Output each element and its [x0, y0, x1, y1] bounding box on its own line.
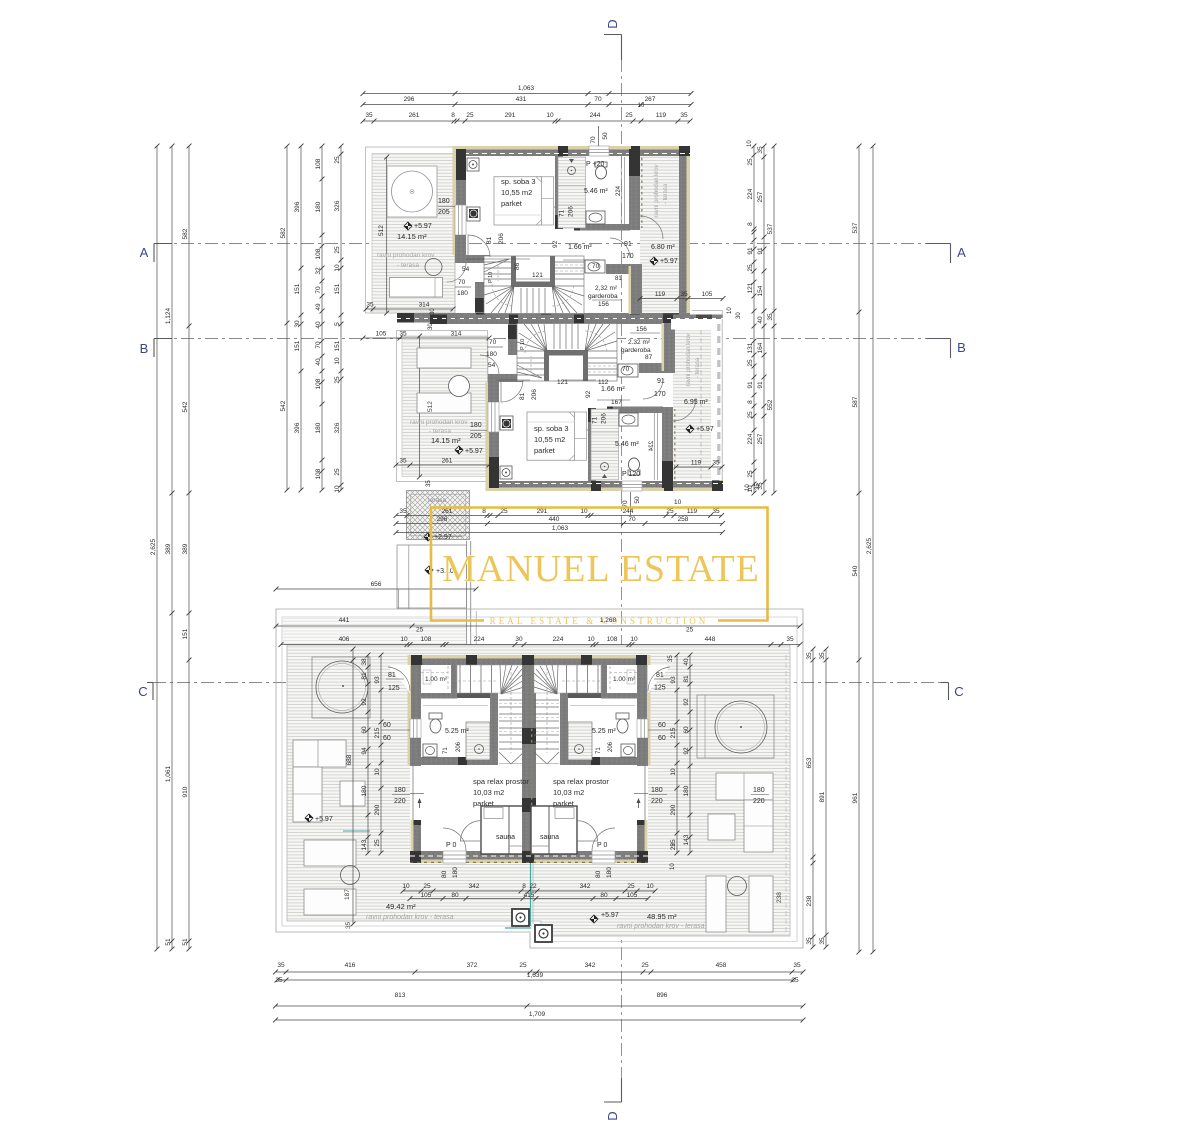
svg-text:35: 35: [806, 652, 813, 660]
svg-text:441: 441: [339, 617, 350, 624]
svg-text:91: 91: [624, 241, 632, 248]
svg-text:180: 180: [753, 787, 765, 794]
svg-text:656: 656: [371, 581, 382, 588]
svg-text:terasa: terasa: [428, 497, 446, 504]
svg-text:35: 35: [757, 146, 764, 154]
svg-text:81: 81: [656, 672, 664, 679]
svg-text:224: 224: [747, 433, 754, 444]
svg-text:60: 60: [383, 735, 391, 742]
svg-text:5.25 m²: 5.25 m²: [592, 728, 616, 735]
svg-text:80: 80: [451, 892, 459, 899]
svg-text:8: 8: [747, 222, 754, 226]
svg-text:542: 542: [280, 400, 287, 411]
svg-text:105: 105: [376, 331, 387, 338]
svg-text:81: 81: [519, 392, 526, 400]
svg-text:81: 81: [683, 675, 690, 683]
svg-text:8: 8: [747, 400, 754, 404]
svg-text:25: 25: [416, 627, 424, 634]
svg-text:sp. soba 3: sp. soba 3: [501, 177, 536, 186]
svg-text:92: 92: [552, 240, 559, 248]
svg-text:587: 587: [852, 396, 859, 407]
svg-text:582: 582: [280, 227, 287, 238]
svg-text:257: 257: [757, 191, 764, 202]
svg-text:206: 206: [608, 741, 614, 752]
svg-text:70: 70: [315, 286, 322, 294]
svg-text:10: 10: [670, 863, 676, 870]
svg-text:+5.97: +5.97: [601, 912, 619, 919]
svg-text:70: 70: [458, 279, 466, 286]
svg-text:70: 70: [628, 516, 636, 523]
svg-text:35: 35: [277, 962, 285, 969]
svg-text:91: 91: [747, 247, 754, 255]
svg-text:108: 108: [315, 158, 322, 169]
svg-text:2,32 m²: 2,32 m²: [595, 285, 618, 292]
svg-text:206: 206: [601, 413, 608, 424]
svg-text:121: 121: [747, 282, 754, 293]
svg-text:54: 54: [488, 362, 496, 369]
svg-text:P 10: P 10: [520, 339, 526, 350]
svg-text:205: 205: [438, 209, 450, 216]
svg-text:35: 35: [819, 652, 826, 660]
svg-text:108: 108: [421, 636, 432, 643]
svg-text:48.95 m²: 48.95 m²: [647, 912, 677, 921]
svg-text:224: 224: [553, 636, 564, 643]
svg-text:70: 70: [622, 366, 630, 373]
svg-text:35: 35: [791, 977, 799, 984]
svg-text:1,061: 1,061: [165, 765, 172, 782]
svg-text:ravni prohodan krov: ravni prohodan krov: [377, 252, 435, 259]
svg-text:35: 35: [365, 112, 373, 119]
svg-text:- terasa: - terasa: [397, 262, 419, 269]
svg-text:25: 25: [641, 962, 649, 969]
svg-text:38: 38: [361, 658, 368, 666]
svg-text:30: 30: [736, 312, 742, 319]
svg-text:258: 258: [678, 516, 689, 523]
svg-text:30: 30: [294, 320, 301, 328]
svg-text:22: 22: [529, 883, 537, 890]
svg-text:389: 389: [182, 543, 189, 554]
svg-text:92: 92: [683, 747, 690, 755]
svg-text:91: 91: [757, 381, 764, 389]
svg-text:+5.97: +5.97: [465, 448, 483, 455]
svg-text:891: 891: [819, 791, 826, 802]
svg-text:P 120: P 120: [622, 471, 640, 478]
svg-text:35: 35: [819, 937, 826, 945]
svg-text:180: 180: [438, 198, 450, 205]
svg-text:206: 206: [568, 206, 575, 217]
svg-text:406: 406: [339, 636, 350, 643]
svg-text:92: 92: [683, 698, 690, 706]
svg-text:25: 25: [334, 246, 341, 254]
svg-text:5.46 m²: 5.46 m²: [615, 441, 639, 448]
svg-text:ravni prohodan krov: ravni prohodan krov: [410, 419, 468, 426]
svg-text:540: 540: [852, 565, 859, 576]
svg-text:108: 108: [315, 468, 322, 479]
svg-text:35: 35: [668, 655, 674, 662]
svg-text:257: 257: [757, 433, 764, 444]
svg-text:80: 80: [441, 870, 448, 878]
svg-text:156: 156: [598, 301, 609, 308]
svg-text:91: 91: [747, 381, 754, 389]
svg-text:51: 51: [182, 938, 189, 946]
svg-text:B: B: [957, 340, 966, 355]
svg-text:ravni prohodan krov: ravni prohodan krov: [686, 333, 692, 386]
svg-text:P 10: P 10: [488, 272, 494, 283]
svg-text:151: 151: [294, 283, 301, 294]
svg-text:ravni prohodan krov: ravni prohodan krov: [654, 164, 660, 217]
svg-text:180: 180: [486, 351, 497, 358]
svg-text:35: 35: [680, 112, 688, 119]
svg-text:- terasa: - terasa: [663, 183, 669, 204]
svg-text:60: 60: [383, 722, 391, 729]
svg-text:10: 10: [727, 307, 733, 314]
svg-text:180: 180: [394, 787, 406, 794]
svg-text:180: 180: [452, 867, 459, 878]
svg-text:125: 125: [388, 685, 400, 692]
svg-text:1.00 m²: 1.00 m²: [425, 676, 448, 683]
svg-text:238: 238: [776, 892, 783, 903]
svg-text:220: 220: [753, 798, 765, 805]
svg-text:1,639: 1,639: [527, 972, 544, 979]
svg-text:81: 81: [388, 672, 396, 679]
svg-text:10: 10: [400, 636, 408, 643]
svg-text:10: 10: [747, 140, 753, 147]
svg-text:35: 35: [366, 302, 374, 309]
svg-text:93: 93: [670, 676, 677, 684]
svg-text:70: 70: [590, 136, 597, 144]
svg-text:10: 10: [745, 484, 751, 491]
svg-text:180: 180: [315, 422, 322, 433]
svg-text:71: 71: [596, 747, 602, 754]
svg-text:14.15 m²: 14.15 m²: [397, 232, 427, 241]
svg-text:108: 108: [607, 636, 618, 643]
svg-text:P 0: P 0: [597, 842, 607, 849]
svg-text:396: 396: [294, 422, 301, 433]
svg-text:552: 552: [767, 399, 774, 410]
svg-text:10: 10: [580, 508, 588, 515]
svg-text:60: 60: [658, 722, 666, 729]
svg-text:35: 35: [786, 636, 794, 643]
svg-text:C: C: [138, 684, 147, 699]
svg-text:206: 206: [498, 233, 505, 244]
svg-text:35: 35: [806, 937, 813, 945]
svg-text:105: 105: [421, 892, 432, 899]
svg-text:40: 40: [315, 358, 322, 366]
svg-text:30: 30: [428, 323, 434, 330]
svg-text:119: 119: [655, 291, 666, 298]
svg-text:105: 105: [702, 291, 713, 298]
svg-text:spa relax prostor: spa relax prostor: [553, 777, 609, 786]
svg-text:70: 70: [489, 339, 497, 346]
svg-text:B: B: [140, 341, 149, 356]
svg-text:108: 108: [315, 248, 322, 259]
svg-text:60: 60: [683, 726, 690, 734]
svg-text:81: 81: [361, 672, 368, 680]
svg-text:86: 86: [514, 262, 521, 270]
svg-text:35: 35: [399, 508, 407, 515]
svg-text:180: 180: [606, 867, 613, 878]
svg-text:205: 205: [470, 433, 482, 440]
svg-text:35: 35: [712, 460, 720, 467]
svg-text:30: 30: [515, 636, 523, 643]
svg-text:206: 206: [456, 741, 462, 752]
svg-text:1,268: 1,268: [600, 617, 617, 624]
svg-text:1,063: 1,063: [552, 525, 569, 532]
svg-text:40: 40: [315, 321, 322, 329]
svg-text:314: 314: [451, 331, 462, 338]
svg-text:50: 50: [602, 132, 609, 140]
svg-text:40: 40: [683, 658, 690, 666]
svg-text:25: 25: [671, 843, 677, 850]
svg-text:961: 961: [852, 792, 859, 803]
svg-text:+2.97: +2.97: [434, 534, 452, 541]
svg-text:parket: parket: [473, 799, 495, 808]
svg-text:35: 35: [680, 291, 688, 298]
svg-text:688: 688: [346, 754, 353, 765]
svg-text:143: 143: [361, 839, 368, 850]
svg-text:542: 542: [182, 401, 189, 412]
svg-text:108: 108: [315, 378, 322, 389]
svg-text:54: 54: [462, 266, 470, 273]
svg-text:35: 35: [399, 458, 407, 465]
svg-text:25: 25: [500, 508, 508, 515]
svg-text:537: 537: [767, 223, 774, 234]
svg-text:119: 119: [656, 112, 667, 119]
svg-text:1,709: 1,709: [529, 1011, 546, 1018]
svg-text:91: 91: [757, 247, 764, 255]
svg-text:121: 121: [532, 272, 543, 279]
svg-text:P +20: P +20: [586, 161, 604, 168]
svg-text:10: 10: [638, 103, 645, 109]
svg-text:5: 5: [334, 322, 341, 326]
svg-text:81: 81: [615, 276, 622, 282]
svg-text:1,063: 1,063: [518, 85, 535, 92]
svg-text:8: 8: [482, 508, 486, 515]
svg-text:151: 151: [334, 340, 341, 351]
svg-text:94: 94: [361, 747, 368, 755]
svg-text:30: 30: [430, 308, 436, 315]
svg-text:389: 389: [165, 543, 172, 554]
svg-text:35: 35: [767, 313, 774, 321]
svg-text:25: 25: [747, 264, 754, 272]
svg-text:187: 187: [344, 889, 351, 900]
svg-text:60: 60: [658, 735, 666, 742]
svg-text:P 0: P 0: [446, 842, 456, 849]
svg-text:342: 342: [580, 883, 591, 890]
svg-text:180: 180: [470, 422, 482, 429]
svg-text:25: 25: [519, 962, 527, 969]
svg-text:653: 653: [806, 757, 813, 768]
svg-text:10: 10: [334, 357, 341, 365]
svg-text:224: 224: [616, 185, 622, 196]
svg-text:215: 215: [374, 727, 381, 738]
svg-text:10,03 m2: 10,03 m2: [473, 788, 504, 797]
svg-text:125: 125: [654, 685, 666, 692]
svg-text:291: 291: [505, 112, 516, 119]
svg-text:813: 813: [395, 992, 406, 999]
svg-text:261: 261: [442, 458, 453, 465]
svg-text:224: 224: [747, 188, 754, 199]
svg-text:spa relax prostor: spa relax prostor: [473, 777, 529, 786]
svg-text:10: 10: [587, 636, 595, 643]
svg-text:81: 81: [486, 236, 493, 244]
svg-text:10: 10: [646, 883, 654, 890]
svg-text:244: 244: [623, 508, 634, 515]
svg-text:10: 10: [674, 499, 682, 506]
svg-text:92: 92: [585, 390, 592, 398]
svg-text:143: 143: [683, 834, 690, 845]
svg-text:70: 70: [315, 341, 322, 349]
svg-text:6.95 m²: 6.95 m²: [684, 399, 708, 406]
svg-text:180: 180: [651, 787, 663, 794]
svg-text:416: 416: [345, 962, 356, 969]
svg-text:415: 415: [524, 892, 535, 899]
svg-text:151: 151: [334, 283, 341, 294]
svg-text:10: 10: [630, 636, 638, 643]
svg-text:290: 290: [374, 804, 381, 815]
svg-text:D: D: [605, 1111, 620, 1120]
svg-text:440: 440: [549, 516, 560, 523]
svg-text:180: 180: [315, 201, 322, 212]
svg-text:25: 25: [686, 627, 694, 634]
svg-text:70: 70: [594, 96, 602, 103]
svg-text:296: 296: [404, 96, 415, 103]
svg-text:10: 10: [334, 264, 341, 272]
svg-text:244: 244: [590, 112, 601, 119]
svg-text:C: C: [954, 684, 963, 699]
svg-text:87: 87: [645, 354, 653, 361]
svg-text:896: 896: [657, 992, 668, 999]
svg-text:156: 156: [636, 326, 647, 333]
svg-text:garderoba: garderoba: [621, 347, 651, 354]
svg-text:2,625: 2,625: [866, 537, 873, 554]
svg-text:151: 151: [182, 628, 189, 639]
svg-text:458: 458: [716, 962, 727, 969]
svg-text:parket: parket: [534, 446, 556, 455]
svg-text:1.66 m²: 1.66 m²: [568, 244, 592, 251]
svg-text:10,55 m2: 10,55 m2: [501, 188, 532, 197]
svg-text:291: 291: [537, 508, 548, 515]
svg-text:80: 80: [595, 870, 602, 878]
svg-text:215: 215: [670, 727, 677, 738]
svg-text:sauna: sauna: [540, 834, 559, 841]
svg-text:170: 170: [654, 391, 666, 398]
svg-text:582: 582: [182, 228, 189, 239]
svg-text:119: 119: [691, 460, 702, 467]
svg-text:35: 35: [345, 921, 352, 929]
svg-text:1.66 m²: 1.66 m²: [601, 386, 625, 393]
svg-text:25: 25: [334, 468, 341, 476]
svg-text:180: 180: [361, 785, 368, 796]
svg-text:238: 238: [806, 895, 813, 906]
svg-text:32: 32: [315, 267, 322, 275]
svg-text:A: A: [140, 245, 149, 260]
svg-text:ravni prohodan krov - terasa: ravni prohodan krov - terasa: [617, 923, 705, 930]
svg-text:71: 71: [559, 209, 566, 217]
svg-text:sauna: sauna: [496, 834, 515, 841]
svg-text:MANUEL ESTATE: MANUEL ESTATE: [442, 548, 760, 590]
svg-text:314: 314: [419, 302, 430, 309]
svg-text:- terasa: - terasa: [695, 357, 701, 378]
svg-text:8: 8: [451, 112, 455, 119]
svg-text:326: 326: [334, 200, 341, 211]
svg-text:6.80 m²: 6.80 m²: [651, 244, 675, 251]
svg-text:1,124: 1,124: [165, 307, 172, 324]
svg-text:1.00 m²: 1.00 m²: [613, 676, 636, 683]
svg-text:10: 10: [374, 768, 381, 776]
svg-text:35: 35: [275, 977, 283, 984]
svg-text:224: 224: [649, 441, 655, 452]
svg-text:ravni prohodan krov - terasa: ravni prohodan krov - terasa: [366, 914, 454, 921]
svg-text:512: 512: [427, 401, 434, 412]
svg-text:25: 25: [334, 376, 341, 384]
svg-text:151: 151: [294, 340, 301, 351]
svg-text:25: 25: [334, 156, 341, 164]
svg-text:+5.97: +5.97: [696, 426, 714, 433]
svg-text:80: 80: [600, 892, 608, 899]
svg-text:25: 25: [747, 359, 754, 367]
svg-text:8: 8: [522, 883, 526, 890]
svg-text:164: 164: [757, 342, 764, 353]
svg-text:431: 431: [516, 96, 527, 103]
svg-text:10: 10: [334, 485, 341, 493]
svg-text:49.42 m²: 49.42 m²: [386, 902, 416, 911]
svg-text:112: 112: [598, 379, 609, 386]
svg-text:10: 10: [670, 768, 677, 776]
svg-text:131: 131: [747, 342, 754, 353]
svg-text:2.32 m²: 2.32 m²: [628, 339, 651, 346]
svg-text:35: 35: [793, 962, 801, 969]
svg-text:25: 25: [747, 158, 754, 166]
svg-text:parket: parket: [501, 199, 523, 208]
svg-text:910: 910: [182, 786, 189, 797]
svg-text:25: 25: [466, 112, 474, 119]
svg-text:342: 342: [585, 962, 596, 969]
svg-text:garderoba: garderoba: [588, 293, 618, 300]
svg-text:25: 25: [423, 883, 431, 890]
svg-text:220: 220: [394, 798, 406, 805]
svg-text:25: 25: [747, 411, 754, 419]
svg-text:5.46 m²: 5.46 m²: [584, 188, 608, 195]
svg-text:372: 372: [467, 962, 478, 969]
svg-text:119: 119: [687, 508, 698, 515]
svg-text:60: 60: [361, 726, 368, 734]
svg-text:71: 71: [443, 747, 449, 754]
svg-text:326: 326: [334, 422, 341, 433]
svg-text:70: 70: [592, 263, 600, 270]
svg-text:2,625: 2,625: [150, 538, 157, 555]
svg-text:267: 267: [645, 96, 656, 103]
svg-text:D: D: [605, 19, 620, 28]
svg-text:25: 25: [747, 470, 754, 478]
svg-text:290: 290: [670, 804, 677, 815]
svg-text:+5.97: +5.97: [315, 816, 333, 823]
svg-text:261: 261: [442, 508, 453, 515]
svg-text:10: 10: [402, 883, 410, 890]
svg-text:206: 206: [531, 389, 538, 400]
svg-text:40: 40: [757, 316, 764, 324]
svg-text:35: 35: [426, 480, 432, 487]
svg-text:50: 50: [634, 496, 641, 504]
svg-text:10,55 m2: 10,55 m2: [534, 435, 565, 444]
svg-text:35: 35: [399, 331, 407, 338]
svg-text:sp. soba 3: sp. soba 3: [534, 424, 569, 433]
svg-text:91: 91: [657, 378, 665, 385]
svg-text:154: 154: [757, 285, 764, 296]
svg-text:49: 49: [315, 303, 322, 311]
svg-text:+5.97: +5.97: [414, 223, 432, 230]
svg-text:25: 25: [627, 883, 635, 890]
